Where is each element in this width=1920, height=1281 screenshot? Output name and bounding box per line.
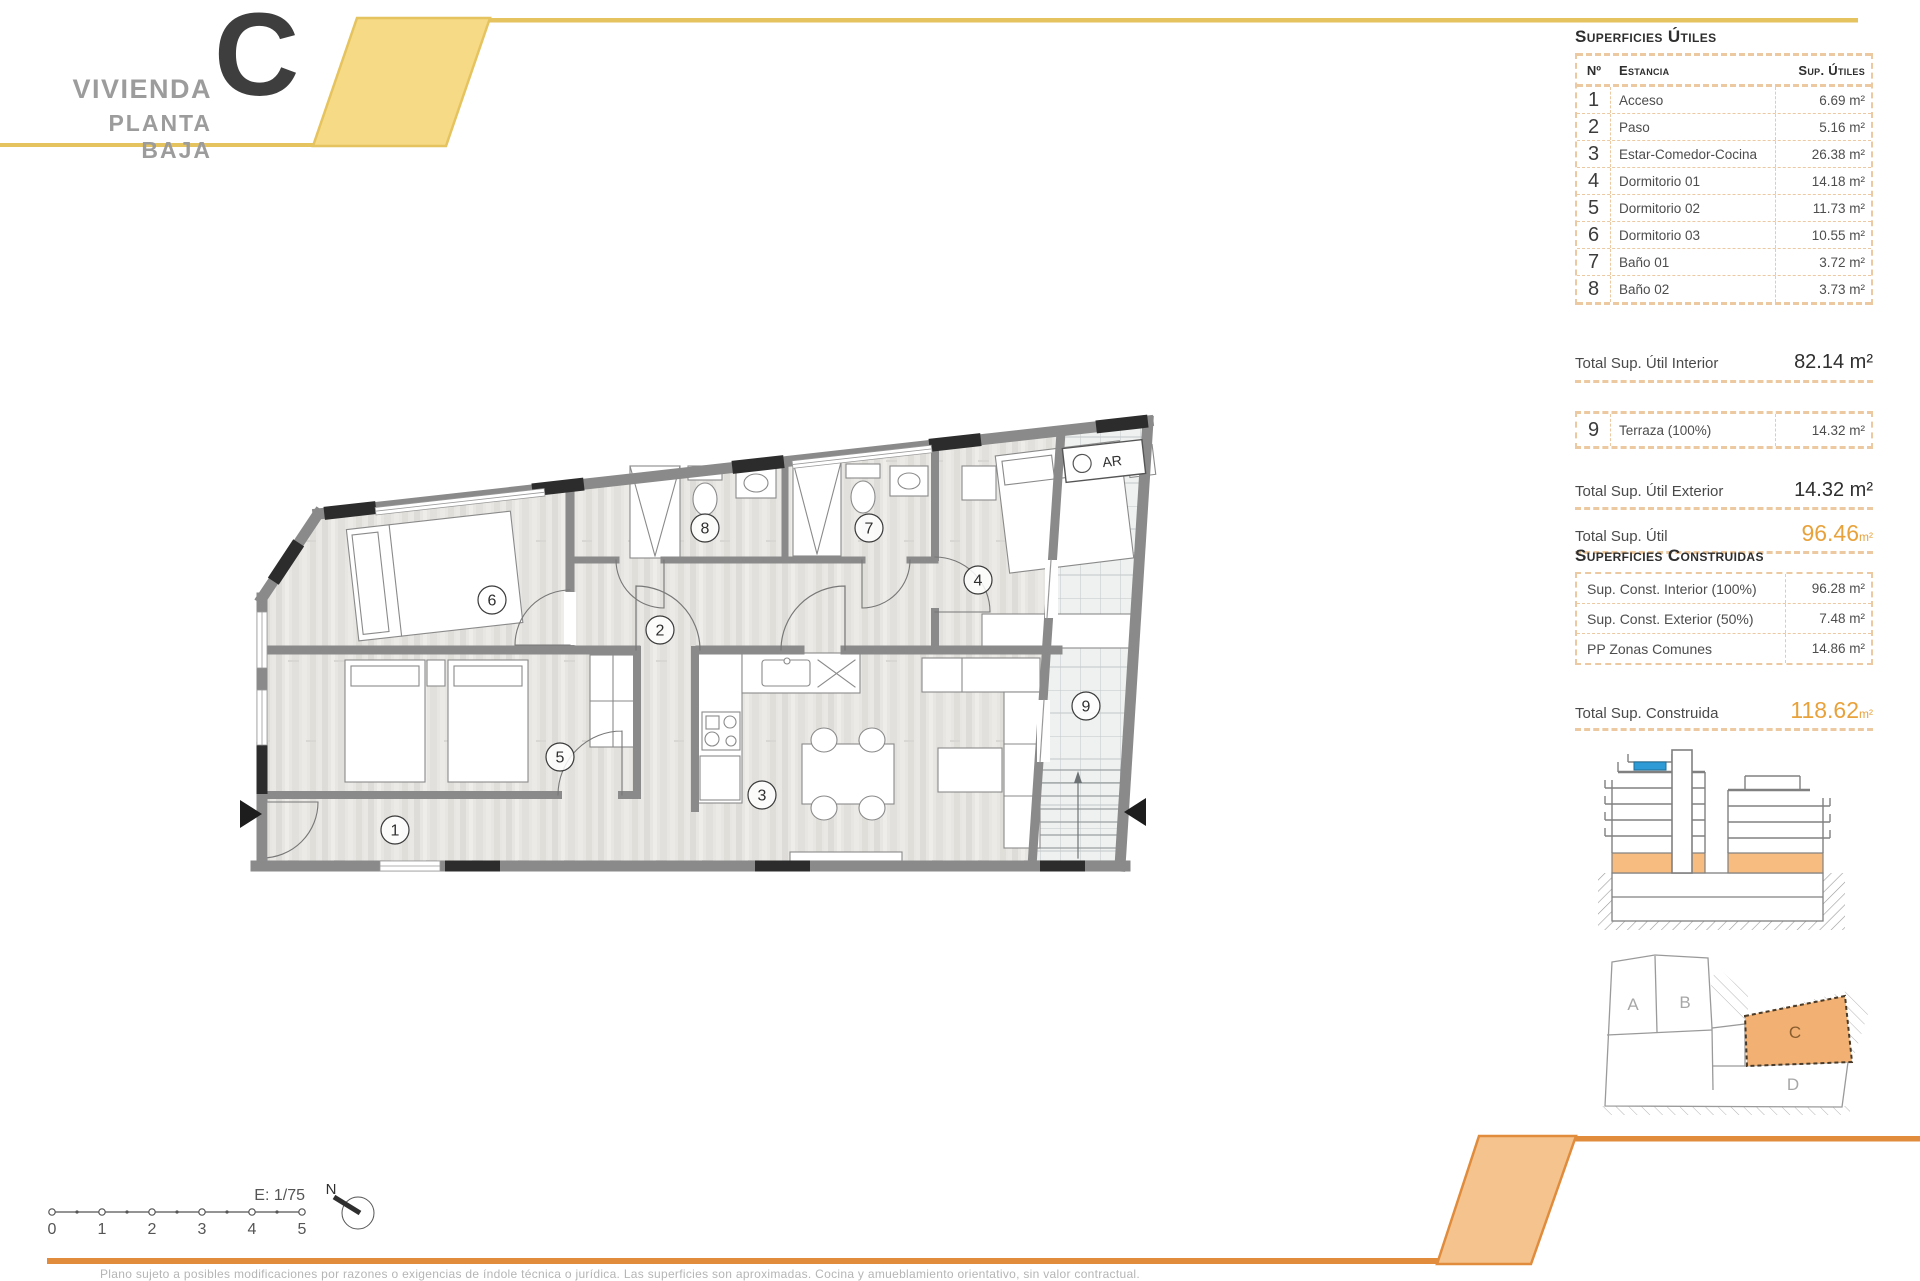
page-subtitle: PLANTA BAJA xyxy=(34,110,212,164)
table-header-row: Nº Estancia Sup. Útiles xyxy=(1577,53,1871,87)
total-util-value: 96.46m² xyxy=(1801,520,1873,547)
table-row: PP Zonas Comunes 14.86 m² xyxy=(1577,634,1871,663)
total-construida-value: 118.62m² xyxy=(1790,697,1873,724)
section-highlight-right xyxy=(1728,853,1823,873)
svg-text:1: 1 xyxy=(391,823,400,840)
total-interior-value: 82.14 m² xyxy=(1794,351,1873,374)
site-label-a: A xyxy=(1627,995,1639,1014)
building-section-diagram xyxy=(1598,750,1845,930)
table-row: 6 Dormitorio 03 10.55 m² xyxy=(1577,222,1871,249)
svg-text:6: 6 xyxy=(488,593,497,610)
page-title: VIVIENDA xyxy=(40,74,212,105)
svg-text:7: 7 xyxy=(865,521,874,538)
table-row: 2 Paso 5.16 m² xyxy=(1577,114,1871,141)
site-label-b: B xyxy=(1679,993,1690,1012)
total-exterior-label: Total Sup. Útil Exterior xyxy=(1575,483,1723,500)
scale-tick-0: 0 xyxy=(48,1221,57,1238)
table-row: 5 Dormitorio 02 11.73 m² xyxy=(1577,195,1871,222)
table-row: 3 Estar-Comedor-Cocina 26.38 m² xyxy=(1577,141,1871,168)
scale-label: E: 1/75 xyxy=(254,1187,305,1204)
total-interior-label: Total Sup. Útil Interior xyxy=(1575,355,1718,372)
disclaimer-text: Plano sujeto a posibles modificaciones p… xyxy=(100,1267,1700,1281)
ar-label: AR xyxy=(1102,452,1123,470)
svg-text:4: 4 xyxy=(974,573,983,590)
table-row: Sup. Const. Interior (100%) 96.28 m² xyxy=(1577,574,1871,604)
bed-dorm03 xyxy=(346,511,522,641)
site-key-plan: A B C D xyxy=(1600,955,1870,1115)
north-label: N xyxy=(326,1181,337,1198)
site-label-d: D xyxy=(1787,1075,1799,1094)
col-header-no: Nº xyxy=(1577,63,1611,78)
total-util-row: Total Sup. Útil 96.46m² xyxy=(1575,520,1873,547)
total-exterior-row: Total Sup. Útil Exterior 14.32 m² xyxy=(1575,479,1873,502)
total-exterior-value: 14.32 m² xyxy=(1794,479,1873,502)
room-badge: 6 xyxy=(478,586,506,614)
total-interior-row: Total Sup. Útil Interior 82.14 m² xyxy=(1575,351,1873,374)
surfaces-utiles-title: Superficies Útiles xyxy=(1575,27,1873,47)
table-row: 8 Baño 02 3.73 m² xyxy=(1577,276,1871,305)
dorm01-bench xyxy=(982,614,1138,648)
floor-plan: AR 1 2 3 4 5 6 7 8 9 xyxy=(240,415,1156,872)
col-header-room: Estancia xyxy=(1611,63,1775,78)
total-util-label: Total Sup. Útil xyxy=(1575,528,1668,545)
footer-stripe-decoration xyxy=(47,1136,1920,1264)
table-row: 9 Terraza (100%) 14.32 m² xyxy=(1577,414,1871,446)
unit-letter: C xyxy=(214,0,299,114)
scale-tick-3: 3 xyxy=(198,1221,207,1238)
room-badge: 1 xyxy=(381,816,409,844)
tv-unit xyxy=(790,852,902,861)
table-row: 1 Acceso 6.69 m² xyxy=(1577,87,1871,114)
scale-tick-5: 5 xyxy=(298,1221,307,1238)
room-badge: 3 xyxy=(748,781,776,809)
surfaces-construidas-title: Superficies Construidas xyxy=(1575,546,1873,566)
room-badge: 9 xyxy=(1072,692,1100,720)
room-badge: 2 xyxy=(646,616,674,644)
table-row: Sup. Const. Exterior (50%) 7.48 m² xyxy=(1577,604,1871,634)
room-badge: 8 xyxy=(691,514,719,542)
table-row: 7 Baño 01 3.72 m² xyxy=(1577,249,1871,276)
scale-tick-1: 1 xyxy=(98,1221,107,1238)
total-construida-label: Total Sup. Construida xyxy=(1575,705,1718,722)
scale-bar: 0 1 2 3 4 5 E: 1/75 xyxy=(48,1187,307,1238)
fridge xyxy=(700,756,740,800)
surfaces-construidas-panel: Superficies Construidas Sup. Const. Inte… xyxy=(1575,546,1873,731)
surfaces-utiles-table: Nº Estancia Sup. Útiles 1 Acceso 6.69 m²… xyxy=(1575,53,1873,305)
coffee-table xyxy=(938,748,1002,792)
north-indicator: N xyxy=(326,1181,374,1229)
scale-tick-2: 2 xyxy=(148,1221,157,1238)
section-blue-panel xyxy=(1634,762,1666,770)
svg-text:9: 9 xyxy=(1082,699,1091,716)
surfaces-utiles-panel: Superficies Útiles Nº Estancia Sup. Útil… xyxy=(1575,27,1873,554)
svg-text:2: 2 xyxy=(656,623,665,640)
table-row: 4 Dormitorio 01 14.18 m² xyxy=(1577,168,1871,195)
room-badge: 7 xyxy=(855,514,883,542)
nightstand xyxy=(427,660,445,686)
room-badge: 5 xyxy=(546,743,574,771)
nightstand xyxy=(962,466,996,500)
terraza-row-box: 9 Terraza (100%) 14.32 m² xyxy=(1575,411,1873,449)
room-badge: 4 xyxy=(964,566,992,594)
svg-text:3: 3 xyxy=(758,788,767,805)
site-label-c: C xyxy=(1789,1023,1801,1042)
svg-text:5: 5 xyxy=(556,750,565,767)
scale-tick-4: 4 xyxy=(248,1221,257,1238)
col-header-area: Sup. Útiles xyxy=(1775,63,1871,78)
surfaces-construidas-table: Sup. Const. Interior (100%) 96.28 m² Sup… xyxy=(1575,572,1873,665)
svg-text:8: 8 xyxy=(701,521,710,538)
total-construida-row: Total Sup. Construida 118.62m² xyxy=(1575,697,1873,724)
